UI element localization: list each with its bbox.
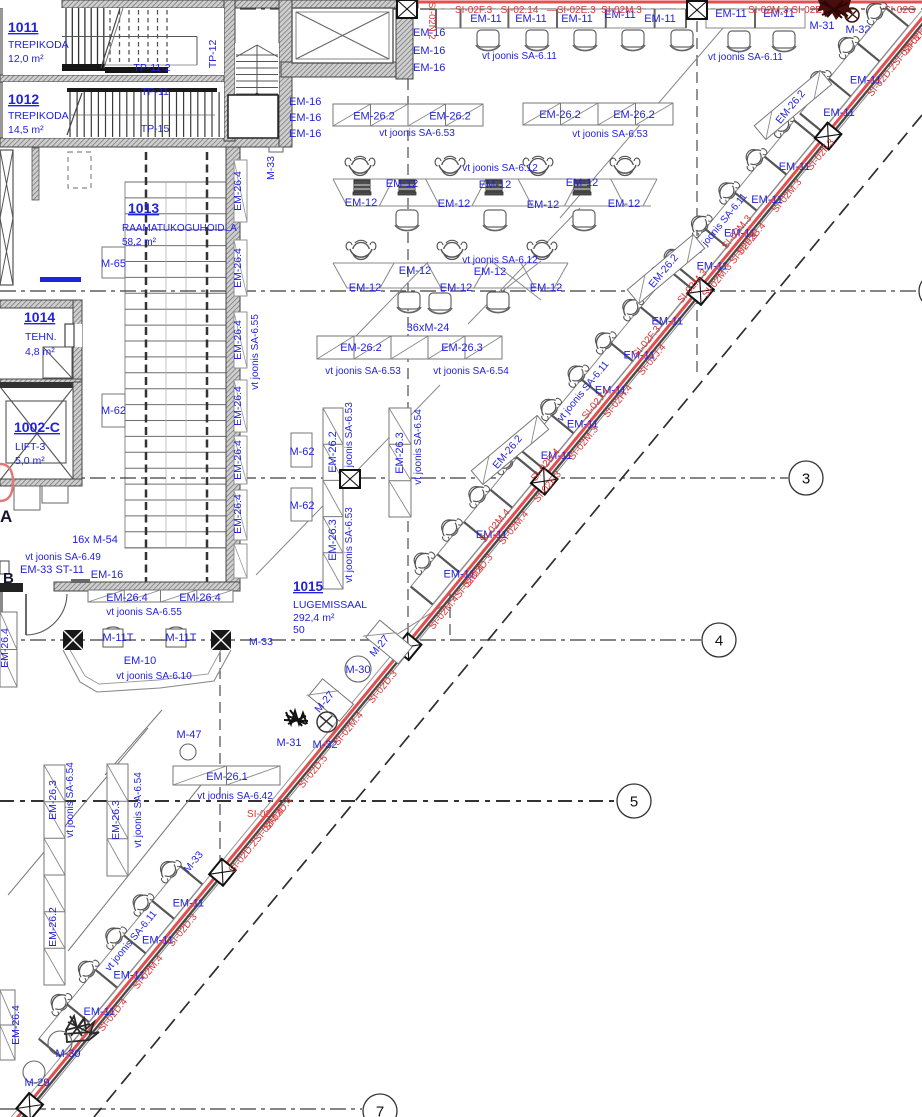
- svg-text:EM-11: EM-11: [715, 8, 747, 20]
- svg-text:M-33: M-33: [249, 636, 273, 648]
- svg-text:vt joonis SA-6.53: vt joonis SA-6.53: [344, 507, 355, 583]
- svg-text:EM-33 ST-11: EM-33 ST-11: [20, 564, 84, 576]
- svg-text:M-65: M-65: [101, 258, 126, 270]
- svg-text:vt joonis SA-6.53: vt joonis SA-6.53: [325, 366, 401, 377]
- svg-text:vt joonis SA-6.11: vt joonis SA-6.11: [482, 51, 557, 62]
- svg-text:vt joonis SA-6.42: vt joonis SA-6.42: [197, 791, 273, 802]
- svg-text:EM-26.1: EM-26.1: [206, 771, 248, 783]
- svg-text:EM-16: EM-16: [289, 128, 321, 140]
- svg-text:M-62: M-62: [101, 405, 126, 417]
- svg-text:EM-12: EM-12: [474, 266, 506, 278]
- svg-text:B: B: [3, 570, 14, 587]
- svg-text:EM-26.4: EM-26.4: [232, 320, 244, 360]
- svg-text:vt joonis SA-6.54: vt joonis SA-6.54: [413, 409, 424, 485]
- svg-text:SI-02N.2: SI-02N.2: [426, 2, 437, 40]
- svg-text:TP-11-2: TP-11-2: [133, 62, 170, 74]
- svg-text:1013: 1013: [128, 200, 159, 216]
- svg-text:EM-10: EM-10: [124, 655, 156, 667]
- svg-text:TREPIKODA: TREPIKODA: [8, 110, 69, 122]
- svg-text:TP-11: TP-11: [141, 86, 169, 98]
- svg-text:LIFT-3: LIFT-3: [15, 441, 46, 453]
- svg-text:5: 5: [630, 794, 638, 811]
- svg-text:EM-16: EM-16: [289, 96, 321, 108]
- svg-text:EM-12: EM-12: [530, 282, 562, 294]
- svg-text:vt joonis SA-6.11: vt joonis SA-6.11: [708, 52, 783, 63]
- svg-text:EM-12: EM-12: [345, 197, 377, 209]
- svg-text:M-33: M-33: [265, 156, 277, 180]
- svg-text:EM-16: EM-16: [413, 62, 445, 74]
- svg-text:EM-26.2: EM-26.2: [327, 431, 339, 473]
- svg-text:12,0 m²: 12,0 m²: [8, 53, 44, 65]
- svg-text:SI-02F.3 SI-02.14 —SI-02E.: SI-02F.3 SI-02.14 —SI-02E.3 SI-02M.3: [455, 5, 642, 16]
- svg-text:vt joonis SA-6.12: vt joonis SA-6.12: [462, 255, 538, 266]
- svg-text:TEHN.: TEHN.: [25, 331, 57, 343]
- svg-text:EM-26.4: EM-26.4: [232, 386, 244, 426]
- svg-text:M-62: M-62: [289, 500, 314, 512]
- svg-text:3: 3: [802, 471, 810, 488]
- svg-text:EM-26.4: EM-26.4: [179, 592, 221, 604]
- svg-text:M-47: M-47: [176, 729, 201, 741]
- svg-text:EM-16: EM-16: [413, 45, 445, 57]
- svg-text:1014: 1014: [24, 309, 55, 325]
- svg-text:14,5 m²: 14,5 m²: [8, 124, 44, 136]
- svg-text:5,0 m²: 5,0 m²: [15, 455, 45, 467]
- svg-text:EM-26.4: EM-26.4: [232, 494, 244, 534]
- svg-text:1012: 1012: [8, 91, 39, 107]
- svg-text:vt joonis SA-6.55: vt joonis SA-6.55: [106, 607, 182, 618]
- svg-text:36xM-24: 36xM-24: [407, 322, 450, 334]
- svg-text:TREPIKODA: TREPIKODA: [8, 39, 69, 51]
- svg-text:EM-12: EM-12: [566, 177, 598, 189]
- svg-text:vt joonis SA-6.55: vt joonis SA-6.55: [250, 314, 261, 390]
- svg-text:1002-C: 1002-C: [14, 419, 60, 435]
- svg-text:4: 4: [715, 633, 723, 650]
- svg-text:M-11T: M-11T: [166, 632, 197, 644]
- svg-text:EM-26.3: EM-26.3: [110, 800, 122, 840]
- svg-text:EM-12: EM-12: [479, 179, 511, 191]
- svg-text:58,2 m²: 58,2 m²: [122, 237, 157, 248]
- svg-text:EM-12: EM-12: [438, 198, 470, 210]
- svg-text:TP-15: TP-15: [141, 123, 170, 135]
- svg-text:EM-26.4: EM-26.4: [232, 440, 244, 480]
- svg-text:EM-16: EM-16: [91, 569, 123, 581]
- svg-text:vt joonis SA-6.12: vt joonis SA-6.12: [462, 163, 538, 174]
- svg-text:vt joonis SA-6.49: vt joonis SA-6.49: [25, 552, 101, 563]
- svg-text:50: 50: [293, 624, 305, 636]
- svg-text:M-31: M-31: [809, 20, 834, 32]
- svg-text:RAAMATUKOGUHOIDLA: RAAMATUKOGUHOIDLA: [122, 223, 237, 234]
- svg-text:1015: 1015: [293, 579, 324, 594]
- svg-text:16x M-54: 16x M-54: [72, 534, 118, 546]
- svg-text:EM-26.2: EM-26.2: [539, 109, 581, 121]
- svg-text:EM-26.2: EM-26.2: [47, 907, 59, 947]
- svg-text:M-29: M-29: [24, 1077, 49, 1089]
- svg-text:EM-26.2: EM-26.2: [429, 111, 471, 123]
- svg-text:LUGEMISSAAL: LUGEMISSAAL: [293, 599, 367, 611]
- svg-text:vt joonis SA-6.54: vt joonis SA-6.54: [133, 772, 144, 848]
- svg-text:A: A: [0, 507, 12, 526]
- svg-text:EM-26.2: EM-26.2: [353, 111, 395, 123]
- svg-text:M-31: M-31: [276, 737, 301, 749]
- svg-text:M-62: M-62: [289, 446, 314, 458]
- svg-text:EM-26.3: EM-26.3: [441, 342, 483, 354]
- svg-text:EM-26.4: EM-26.4: [106, 592, 148, 604]
- svg-text:EM-12: EM-12: [386, 178, 418, 190]
- svg-text:vt joonis SA-6.10: vt joonis SA-6.10: [116, 671, 192, 682]
- svg-text:vt joonis SA-6.53: vt joonis SA-6.53: [344, 402, 355, 478]
- svg-text:vt joonis SA-6.54: vt joonis SA-6.54: [65, 762, 76, 838]
- svg-text:EM-26.2: EM-26.2: [613, 109, 655, 121]
- svg-text:EM-12: EM-12: [608, 198, 640, 210]
- svg-text:EM-26.4: EM-26.4: [232, 171, 244, 211]
- svg-text:EM-26.2: EM-26.2: [340, 342, 382, 354]
- svg-text:EM-11: EM-11: [173, 898, 205, 910]
- svg-text:EM-12: EM-12: [440, 282, 472, 294]
- svg-text:EM-12: EM-12: [399, 265, 431, 277]
- svg-text:EM-26.3: EM-26.3: [394, 432, 406, 474]
- svg-text:292,4 m²: 292,4 m²: [293, 612, 335, 624]
- svg-text:EM-12: EM-12: [527, 199, 559, 211]
- svg-text:vt joonis SA-6.53: vt joonis SA-6.53: [379, 128, 455, 139]
- svg-text:EM-26.4: EM-26.4: [0, 628, 11, 668]
- svg-text:4,8 m²: 4,8 m²: [25, 346, 55, 358]
- svg-text:M-11T: M-11T: [103, 632, 134, 644]
- svg-text:1011: 1011: [8, 19, 39, 35]
- svg-text:vt joonis SA-6.54: vt joonis SA-6.54: [433, 366, 509, 377]
- svg-text:7: 7: [376, 1104, 384, 1117]
- svg-text:EM-11: EM-11: [823, 107, 855, 119]
- svg-text:EM-26.4: EM-26.4: [10, 1005, 22, 1045]
- svg-text:EM-26.4: EM-26.4: [232, 248, 244, 288]
- svg-text:EM-16: EM-16: [289, 112, 321, 124]
- svg-text:TP-12: TP-12: [207, 40, 219, 69]
- svg-text:EM-11: EM-11: [644, 13, 676, 25]
- svg-text:M-30: M-30: [55, 1048, 80, 1060]
- svg-text:vt joonis SA-6.53: vt joonis SA-6.53: [572, 129, 648, 140]
- svg-text:M-30: M-30: [345, 664, 370, 676]
- svg-text:EM-26.3: EM-26.3: [47, 780, 59, 820]
- svg-text:EM-12: EM-12: [349, 282, 381, 294]
- svg-text:EM-26.3: EM-26.3: [327, 519, 339, 561]
